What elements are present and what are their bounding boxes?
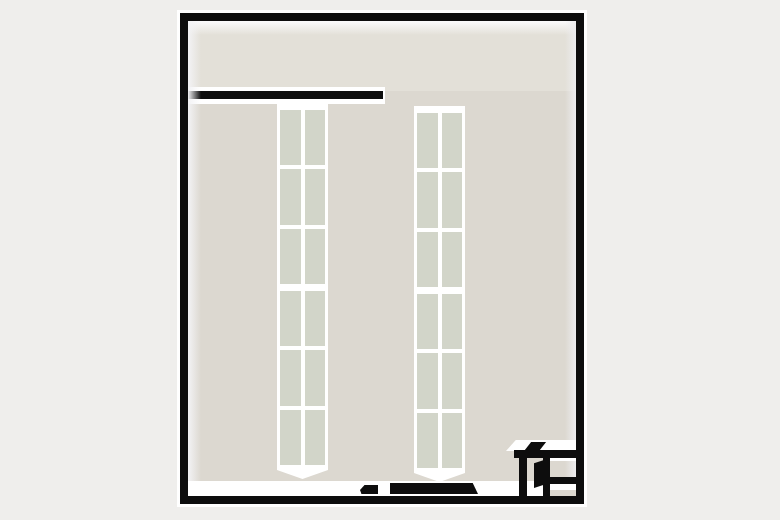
shelf-panel — [442, 413, 463, 468]
shelf-panel — [280, 291, 301, 346]
shelf-panel — [280, 110, 301, 165]
top-wall-bevel — [188, 21, 576, 35]
shelf-panel — [442, 113, 463, 168]
shelf-panel — [305, 229, 326, 284]
shelf-panel — [442, 172, 463, 227]
closet-floor-patch — [550, 490, 576, 496]
shelf-panel — [417, 232, 438, 287]
right-wall-bevel — [565, 21, 576, 496]
closet-shelf-face — [550, 484, 576, 490]
shelf-panel — [442, 353, 463, 408]
shelf-panel — [417, 294, 438, 349]
shelf-panel — [305, 169, 326, 224]
shelf-panel — [417, 413, 438, 468]
shelf-panel — [280, 169, 301, 224]
shelf-panel — [280, 229, 301, 284]
shelf-unit-right[interactable] — [414, 106, 465, 482]
shelf-panel — [280, 410, 301, 465]
shelf-panel — [417, 113, 438, 168]
shelf-panel — [305, 110, 326, 165]
shelf-panel — [280, 350, 301, 405]
shelf-panel — [417, 172, 438, 227]
bottom-floor-highlight — [188, 481, 576, 496]
interior-wall — [188, 91, 385, 99]
room-outline — [180, 13, 584, 504]
closet-left-wall — [519, 450, 527, 496]
shelf-section — [280, 291, 325, 465]
closet-divider-wall — [543, 458, 550, 496]
closet-shelf-edge[interactable] — [550, 477, 576, 484]
shelf-panel — [305, 350, 326, 405]
closet-open-door[interactable] — [534, 460, 544, 488]
left-wall-bevel — [188, 21, 201, 496]
shelf-panel — [442, 294, 463, 349]
shelf-unit-left[interactable] — [277, 103, 328, 479]
room-floor — [188, 21, 576, 496]
shelf-section — [280, 110, 325, 284]
shelf-panel — [417, 353, 438, 408]
shelf-panel — [442, 232, 463, 287]
shelf-panel — [305, 291, 326, 346]
shelf-section — [417, 294, 462, 468]
shelf-section — [417, 113, 462, 287]
shelf-panel — [305, 410, 326, 465]
bottom-door-slab-wide[interactable] — [390, 483, 478, 494]
